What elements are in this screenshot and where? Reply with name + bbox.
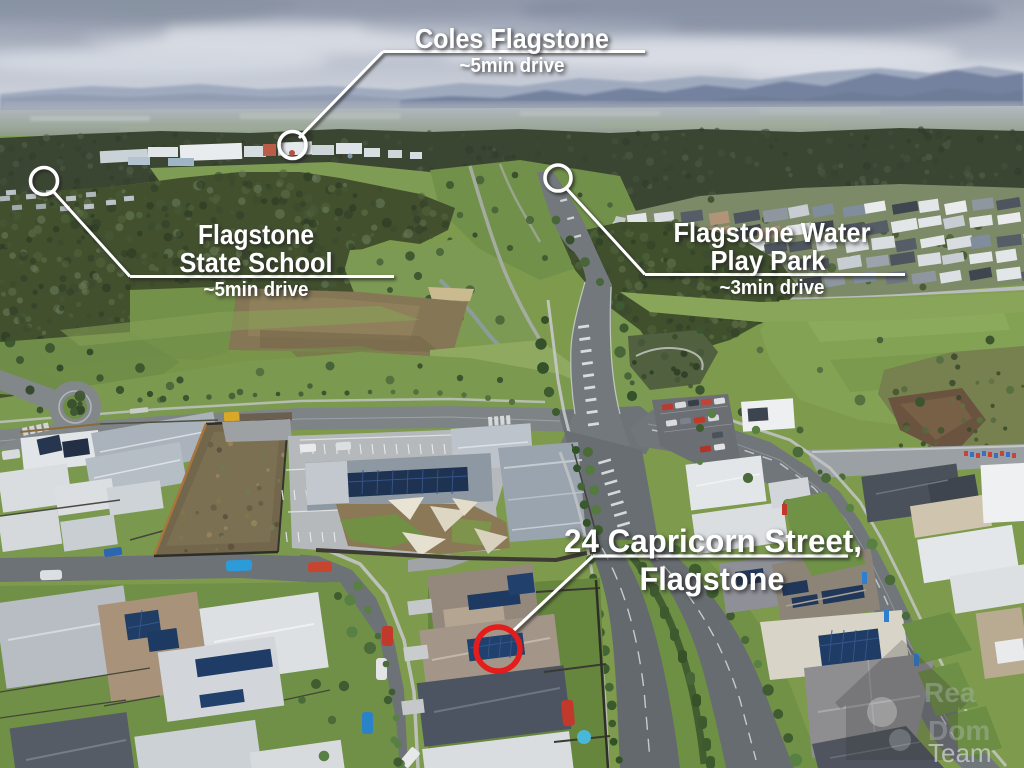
svg-text:24 Capricorn Street,: 24 Capricorn Street, — [564, 523, 862, 559]
svg-text:Coles Flagstone: Coles Flagstone — [415, 23, 609, 54]
svg-text:Flagstone: Flagstone — [640, 561, 785, 597]
svg-text:Flagstone: Flagstone — [198, 219, 314, 250]
svg-text:Flagstone Water: Flagstone Water — [674, 217, 871, 248]
svg-text:~5min drive: ~5min drive — [204, 279, 309, 301]
svg-text:Team: Team — [928, 738, 992, 768]
svg-text:~5min drive: ~5min drive — [460, 55, 565, 77]
svg-text:~3min drive: ~3min drive — [720, 277, 825, 299]
svg-text:Rea: Rea — [924, 677, 976, 708]
svg-text:Play Park: Play Park — [711, 245, 826, 276]
svg-text:State School: State School — [180, 247, 333, 278]
